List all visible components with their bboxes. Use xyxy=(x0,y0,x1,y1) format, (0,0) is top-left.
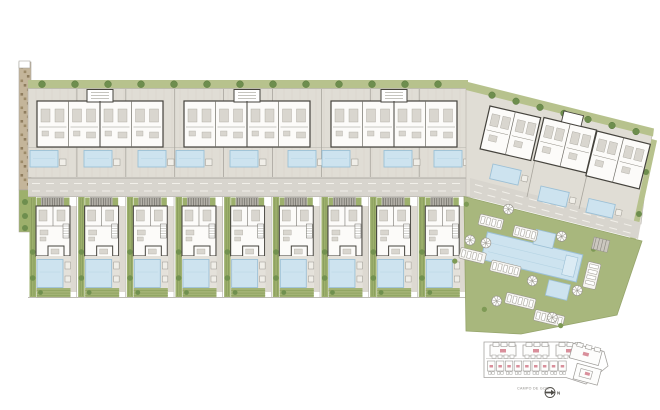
sofa xyxy=(246,249,254,254)
villa-plot xyxy=(321,197,368,298)
keyplan-label-mark xyxy=(525,365,529,368)
keyplan-label-mark xyxy=(507,365,511,368)
bed xyxy=(55,109,64,122)
bed xyxy=(283,109,292,122)
sofa xyxy=(349,132,358,138)
bed xyxy=(202,109,211,122)
tree xyxy=(176,249,182,255)
villa-plot xyxy=(127,197,174,298)
deck-box xyxy=(260,262,266,269)
tree xyxy=(22,225,28,231)
bed xyxy=(297,109,306,122)
table xyxy=(105,131,112,136)
tree xyxy=(303,81,310,88)
deck-box xyxy=(414,159,421,166)
keyplan-bump xyxy=(509,343,515,347)
earth-texture xyxy=(24,179,27,182)
table xyxy=(429,237,435,241)
earth-texture xyxy=(21,134,24,137)
side-garden xyxy=(78,197,85,297)
tree xyxy=(79,275,85,281)
entry-planter xyxy=(453,198,459,207)
tree xyxy=(489,92,496,99)
bed xyxy=(220,109,229,122)
sofa xyxy=(118,132,127,138)
deck-box xyxy=(114,159,121,166)
bed xyxy=(203,210,211,221)
side-garden xyxy=(127,197,134,297)
keyplan-tooth xyxy=(558,355,562,358)
pool xyxy=(280,260,306,288)
keyplan-tooth xyxy=(542,372,545,375)
deck-box xyxy=(206,159,213,166)
side-path xyxy=(362,206,368,292)
villa-plot xyxy=(78,197,125,298)
bed xyxy=(300,210,308,221)
site-plan-page: CAMPO DE GOLF N xyxy=(0,0,660,410)
bed xyxy=(335,109,344,122)
tree xyxy=(135,290,140,295)
bed xyxy=(150,109,159,122)
tree xyxy=(369,81,376,88)
deck-box xyxy=(352,159,359,166)
earth-texture xyxy=(24,138,27,141)
pool xyxy=(329,260,355,288)
bed xyxy=(412,109,421,122)
kitchen xyxy=(429,230,437,235)
bed xyxy=(118,109,127,122)
villa-plot xyxy=(273,197,320,298)
entry-planter xyxy=(231,198,236,207)
keyplan-tooth xyxy=(510,372,512,375)
keyplan-tooth xyxy=(504,355,508,358)
table xyxy=(186,237,192,241)
keyplan-tooth xyxy=(554,372,557,375)
bed xyxy=(349,210,357,221)
tree xyxy=(138,81,145,88)
tree xyxy=(72,81,79,88)
keyplan-tooth xyxy=(564,355,568,358)
earth-texture xyxy=(21,147,24,150)
sofa xyxy=(392,249,400,254)
pool xyxy=(86,260,112,288)
earth-texture xyxy=(24,71,27,74)
entry-planter xyxy=(426,198,431,207)
tree xyxy=(171,81,178,88)
bed xyxy=(104,109,113,122)
tree xyxy=(22,213,28,219)
keyplan-tooth xyxy=(536,372,539,375)
keyplan-label-mark xyxy=(561,365,565,368)
tree xyxy=(371,249,377,255)
tree xyxy=(281,290,286,295)
entry-planter xyxy=(37,198,42,207)
side-path xyxy=(265,206,271,292)
table xyxy=(284,131,291,136)
bed xyxy=(331,210,339,221)
kitchen xyxy=(381,230,389,235)
sofa xyxy=(297,132,306,138)
side-garden xyxy=(175,197,182,297)
tree xyxy=(322,275,328,281)
entry-planter xyxy=(134,198,139,207)
tree xyxy=(127,249,133,255)
deck-box xyxy=(406,276,412,282)
bed xyxy=(188,109,197,122)
side-path xyxy=(168,206,174,292)
villa-plot xyxy=(419,197,466,298)
keyplan-label-mark xyxy=(534,365,538,368)
table xyxy=(42,131,49,136)
earth-texture xyxy=(21,174,24,177)
sofa xyxy=(440,249,448,254)
bed xyxy=(234,109,243,122)
pool xyxy=(426,260,452,288)
deck-box xyxy=(162,276,168,282)
sofa xyxy=(51,249,59,254)
table xyxy=(235,237,241,241)
deck-box xyxy=(454,276,460,282)
deck-box xyxy=(168,159,175,166)
earth-texture xyxy=(24,111,27,114)
site-plan-drawing: CAMPO DE GOLF N xyxy=(0,0,660,410)
sofa xyxy=(294,249,302,254)
keyplan-label-mark xyxy=(543,365,547,368)
kitchen xyxy=(283,230,291,235)
keyplan-tooth xyxy=(551,372,554,375)
deck-box xyxy=(211,262,217,269)
keyplan-tooth xyxy=(524,372,527,375)
tree xyxy=(585,116,592,123)
bed xyxy=(234,210,242,221)
keyplan-label-mark xyxy=(498,365,502,368)
keyplan-tooth xyxy=(489,372,492,375)
bed xyxy=(446,210,454,221)
sofa xyxy=(343,249,351,254)
entry-planter xyxy=(356,198,362,207)
entry-planter xyxy=(405,198,411,207)
tree xyxy=(636,211,642,217)
earth-texture xyxy=(24,84,27,87)
tree xyxy=(233,290,238,295)
table xyxy=(368,131,375,136)
deck-box xyxy=(308,262,314,269)
sofa xyxy=(55,132,64,138)
deck-box xyxy=(114,262,120,269)
deck-box xyxy=(406,262,412,269)
side-path xyxy=(71,206,77,292)
bed xyxy=(265,109,274,122)
table xyxy=(74,131,81,136)
keyplan-label-mark xyxy=(516,365,520,368)
tree xyxy=(38,290,43,295)
table xyxy=(252,131,259,136)
keyplan-label-mark xyxy=(533,349,539,353)
kitchen xyxy=(40,230,48,235)
sofa xyxy=(381,132,390,138)
deck-box xyxy=(308,276,314,282)
earth-texture xyxy=(21,161,24,164)
keyplan-label-mark xyxy=(552,365,556,368)
tree xyxy=(330,290,335,295)
tree xyxy=(105,81,112,88)
bed xyxy=(57,210,65,221)
earth-texture xyxy=(21,93,24,96)
tree xyxy=(435,81,442,88)
bed xyxy=(430,109,439,122)
tree xyxy=(22,199,28,205)
keyplan-tooth xyxy=(506,372,509,375)
tree xyxy=(270,81,277,88)
entry-planter xyxy=(328,198,333,207)
table xyxy=(137,131,144,136)
keyplan-tooth xyxy=(560,372,563,375)
deck-box xyxy=(60,159,67,166)
sofa xyxy=(265,132,274,138)
side-garden xyxy=(273,197,280,297)
villa-plot xyxy=(30,197,77,298)
side-garden xyxy=(321,197,328,297)
entry-planter xyxy=(259,198,265,207)
tree xyxy=(30,249,36,255)
table xyxy=(336,131,343,136)
bed xyxy=(39,210,47,221)
keyplan-tooth xyxy=(492,372,495,375)
earth-texture xyxy=(24,152,27,155)
keyplan-tooth xyxy=(519,372,522,375)
bed xyxy=(252,210,260,221)
deck-box xyxy=(357,262,363,269)
earth-texture xyxy=(21,120,24,123)
earth-texture xyxy=(27,75,30,78)
earth-texture xyxy=(21,107,24,110)
side-garden xyxy=(419,197,426,297)
keyplan-bump xyxy=(567,343,573,347)
sofa xyxy=(100,249,108,254)
pool xyxy=(134,260,160,288)
sofa xyxy=(87,132,96,138)
sofa xyxy=(202,132,211,138)
keyplan-bump xyxy=(559,343,565,347)
bed xyxy=(380,210,388,221)
bed xyxy=(398,210,406,221)
side-garden xyxy=(370,197,377,297)
villa-plot xyxy=(370,197,417,298)
tree xyxy=(513,98,520,105)
keyplan-tooth xyxy=(533,372,536,375)
kitchen xyxy=(89,230,97,235)
deck-box xyxy=(211,276,217,282)
side-garden xyxy=(224,197,231,297)
bed xyxy=(154,210,162,221)
bed xyxy=(136,210,144,221)
keyplan-label-mark xyxy=(490,365,494,368)
tree xyxy=(225,275,231,281)
tree xyxy=(273,249,279,255)
tree xyxy=(87,290,92,295)
tree xyxy=(322,249,328,255)
kitchen xyxy=(235,230,243,235)
sofa xyxy=(234,132,243,138)
tree xyxy=(633,128,640,135)
tree xyxy=(184,290,189,295)
tree xyxy=(609,122,616,129)
keyplan-bump xyxy=(501,343,507,347)
keyplan-tooth xyxy=(510,355,514,358)
bed xyxy=(73,109,82,122)
kitchen xyxy=(332,230,340,235)
sofa xyxy=(412,132,421,138)
table xyxy=(221,131,228,136)
keyplan-caption: CAMPO DE GOLF xyxy=(517,387,551,391)
bed xyxy=(282,210,290,221)
road-surface xyxy=(28,178,470,197)
entry-planter xyxy=(377,198,382,207)
keyplan-tooth xyxy=(531,355,535,358)
entry-planter xyxy=(307,198,313,207)
keyplan-tooth xyxy=(501,372,504,375)
deck-box xyxy=(114,276,120,282)
sofa xyxy=(148,249,156,254)
bed xyxy=(136,109,145,122)
sofa xyxy=(150,132,159,138)
tree xyxy=(419,275,425,281)
deck-box xyxy=(357,276,363,282)
entrance-marker xyxy=(19,61,30,68)
villa-plot xyxy=(175,197,222,298)
earth-texture xyxy=(24,125,27,128)
entry-planter xyxy=(182,198,187,207)
pool xyxy=(232,260,258,288)
keyplan-tooth xyxy=(492,355,496,358)
tree xyxy=(537,104,544,111)
pool xyxy=(378,260,404,288)
tree xyxy=(39,81,46,88)
sofa xyxy=(197,249,205,254)
apartment-row xyxy=(28,89,470,178)
deck-box xyxy=(65,262,71,269)
keyplan-tooth xyxy=(498,355,502,358)
table xyxy=(89,237,95,241)
access-road xyxy=(28,178,470,197)
tree xyxy=(237,81,244,88)
table xyxy=(137,237,143,241)
bed xyxy=(185,210,193,221)
keyplan-tooth xyxy=(563,372,566,375)
pool xyxy=(37,260,63,288)
deck-box xyxy=(65,276,71,282)
earth-texture xyxy=(24,98,27,101)
side-path xyxy=(119,206,125,292)
deck-box xyxy=(162,262,168,269)
entry-planter xyxy=(280,198,285,207)
table xyxy=(431,131,438,136)
tree xyxy=(379,290,384,295)
table xyxy=(381,237,387,241)
side-path xyxy=(216,206,222,292)
entry-planter xyxy=(161,198,167,207)
keyplan-tooth xyxy=(545,372,548,375)
bed xyxy=(428,210,436,221)
bed xyxy=(349,109,358,122)
deck-box xyxy=(615,209,622,216)
tree xyxy=(127,275,133,281)
deck-box xyxy=(569,197,576,204)
bed xyxy=(398,109,407,122)
table xyxy=(40,237,46,241)
kitchen xyxy=(137,230,145,235)
deck-box xyxy=(260,159,267,166)
entry-planter xyxy=(64,198,70,207)
tree xyxy=(427,290,432,295)
pool xyxy=(183,260,209,288)
bed xyxy=(444,109,453,122)
tree xyxy=(176,275,182,281)
entry-planter xyxy=(210,198,216,207)
north-arrow-label: N xyxy=(557,390,560,395)
keyplan-tooth xyxy=(525,355,529,358)
kitchen xyxy=(186,230,194,235)
tree xyxy=(204,81,211,88)
bed xyxy=(106,210,114,221)
table xyxy=(332,237,338,241)
bed xyxy=(381,109,390,122)
bed xyxy=(367,109,376,122)
bed xyxy=(87,109,96,122)
keyplan-tooth xyxy=(497,372,500,375)
bed xyxy=(251,109,260,122)
keyplan-label-mark xyxy=(500,349,506,353)
tree xyxy=(419,249,425,255)
tree xyxy=(79,249,85,255)
side-garden xyxy=(30,197,37,297)
side-path xyxy=(411,206,417,292)
sofa xyxy=(444,132,453,138)
earth-texture xyxy=(24,165,27,168)
tree xyxy=(225,249,231,255)
table xyxy=(399,131,406,136)
keyplan-tooth xyxy=(515,372,518,375)
bed xyxy=(41,109,50,122)
deck-box xyxy=(260,276,266,282)
entry-planter xyxy=(85,198,90,207)
table xyxy=(283,237,289,241)
tree xyxy=(336,81,343,88)
keyplan-bump xyxy=(526,343,532,347)
villa-row xyxy=(28,197,466,298)
villa-plot xyxy=(224,197,271,298)
deck-box xyxy=(521,175,528,182)
keyplan-bump xyxy=(542,343,548,347)
table xyxy=(189,131,196,136)
tree xyxy=(371,275,377,281)
entry-planter xyxy=(113,198,119,207)
tree xyxy=(273,275,279,281)
tree xyxy=(30,275,36,281)
keyplan-tooth xyxy=(543,355,547,358)
keyplan-bump xyxy=(534,343,540,347)
bed xyxy=(88,210,96,221)
keyplan-bump xyxy=(493,343,499,347)
keyplan-tooth xyxy=(527,372,530,375)
keyplan-tooth xyxy=(537,355,541,358)
tree xyxy=(402,81,409,88)
side-path xyxy=(314,206,320,292)
earth-texture xyxy=(21,80,24,83)
